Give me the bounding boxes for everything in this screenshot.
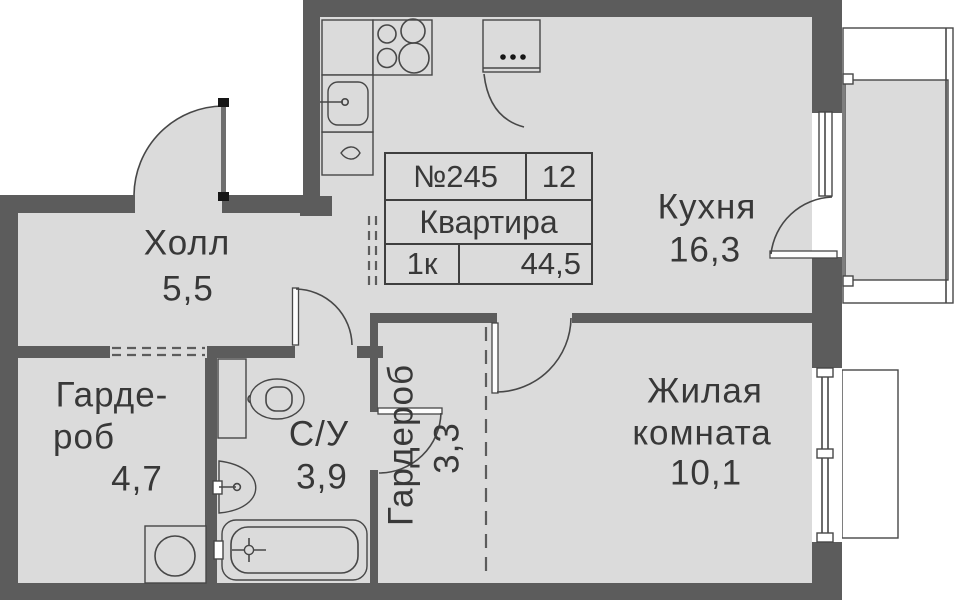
window-box — [842, 370, 898, 538]
total-area: 44,5 — [460, 245, 591, 283]
balcony-icon — [843, 28, 953, 303]
living-label-2: комната — [632, 416, 771, 451]
kitchen-area: 16,3 — [669, 233, 741, 268]
kitchen-label: Кухня — [658, 190, 757, 225]
object-label: Квартира — [419, 204, 557, 241]
hall-label: Холл — [144, 226, 231, 261]
info-row-number: №245 12 — [386, 154, 591, 199]
living-area: 10,1 — [670, 456, 742, 491]
living-label-1: Жилая — [647, 374, 763, 409]
bathroom-label: С/У — [289, 417, 349, 452]
wardrobe1-label-2: роб — [53, 420, 115, 455]
wardrobe2-label: Гардероб — [384, 364, 419, 526]
info-row-area: 1к 44,5 — [386, 243, 591, 283]
wardrobe2-area: 3,3 — [430, 422, 465, 474]
kitchen-window-icon — [812, 112, 842, 257]
apartment-number: №245 — [386, 154, 527, 199]
rooms-count: 1к — [386, 245, 460, 283]
kitchen-sink-icon — [320, 75, 373, 132]
wardrobe1-label-1: Гарде- — [56, 378, 169, 413]
floor-plan-drawing — [0, 0, 956, 600]
info-row-type: Квартира — [386, 199, 591, 243]
hall-area: 5,5 — [162, 272, 214, 307]
living-window-icon — [812, 368, 842, 542]
floor-number: 12 — [527, 154, 591, 199]
washing-machine-icon — [145, 526, 206, 583]
apartment-info-table: №245 12 Квартира 1к 44,5 — [384, 152, 593, 285]
bathroom-area: 3,9 — [296, 460, 348, 495]
wardrobe1-area: 4,7 — [111, 462, 163, 497]
bathtub-icon — [214, 520, 367, 580]
stove-icon — [373, 19, 432, 75]
floor-plan: Холл 5,5 Кухня 16,3 Гарде- роб 4,7 С/У 3… — [0, 0, 956, 600]
